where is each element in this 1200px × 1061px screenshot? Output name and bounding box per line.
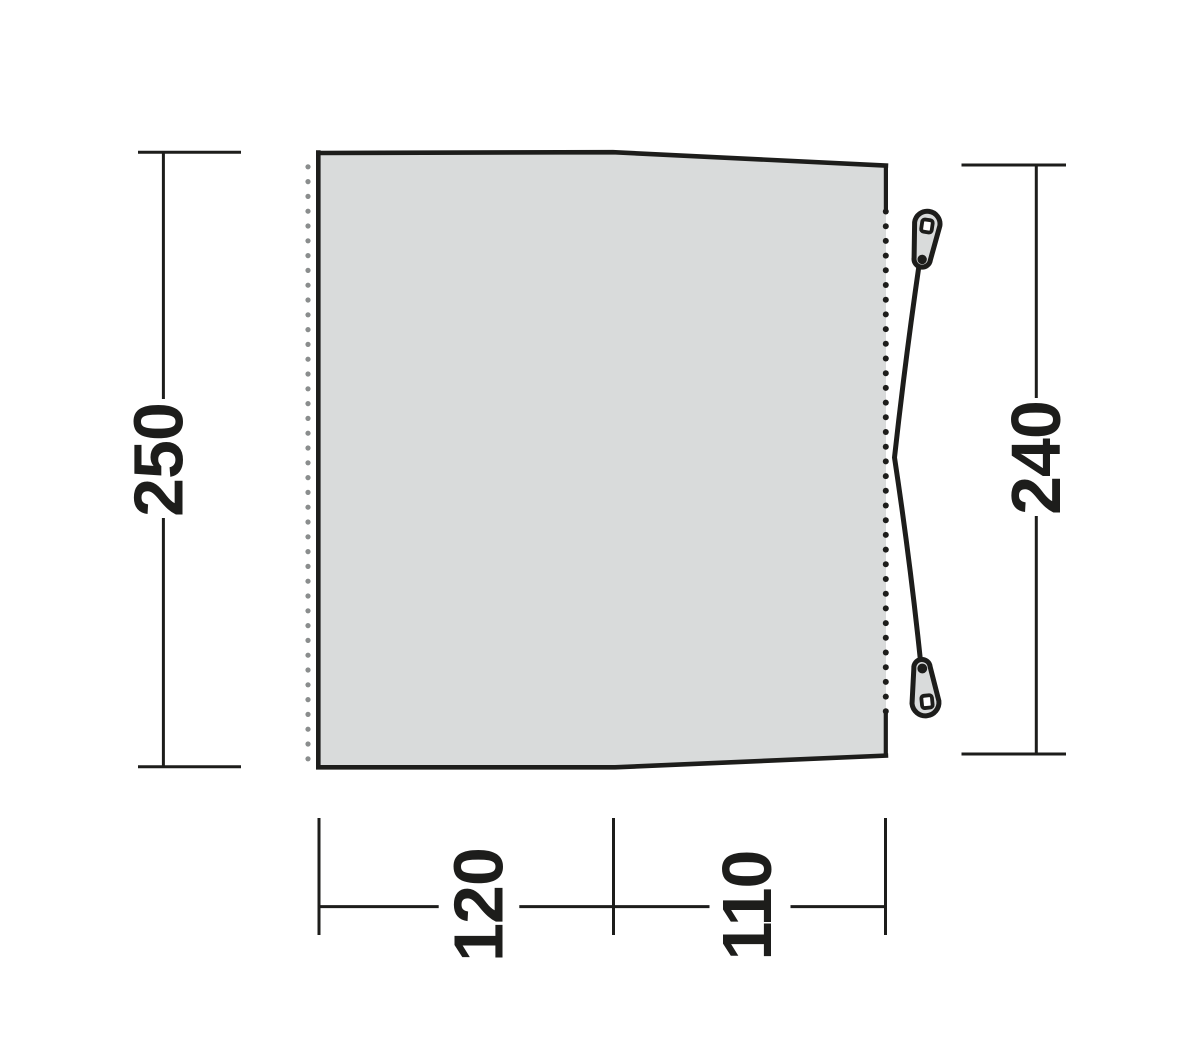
svg-text:120: 120 xyxy=(440,848,518,962)
svg-text:240: 240 xyxy=(997,401,1075,515)
svg-text:110: 110 xyxy=(708,851,786,961)
svg-text:250: 250 xyxy=(120,403,198,517)
